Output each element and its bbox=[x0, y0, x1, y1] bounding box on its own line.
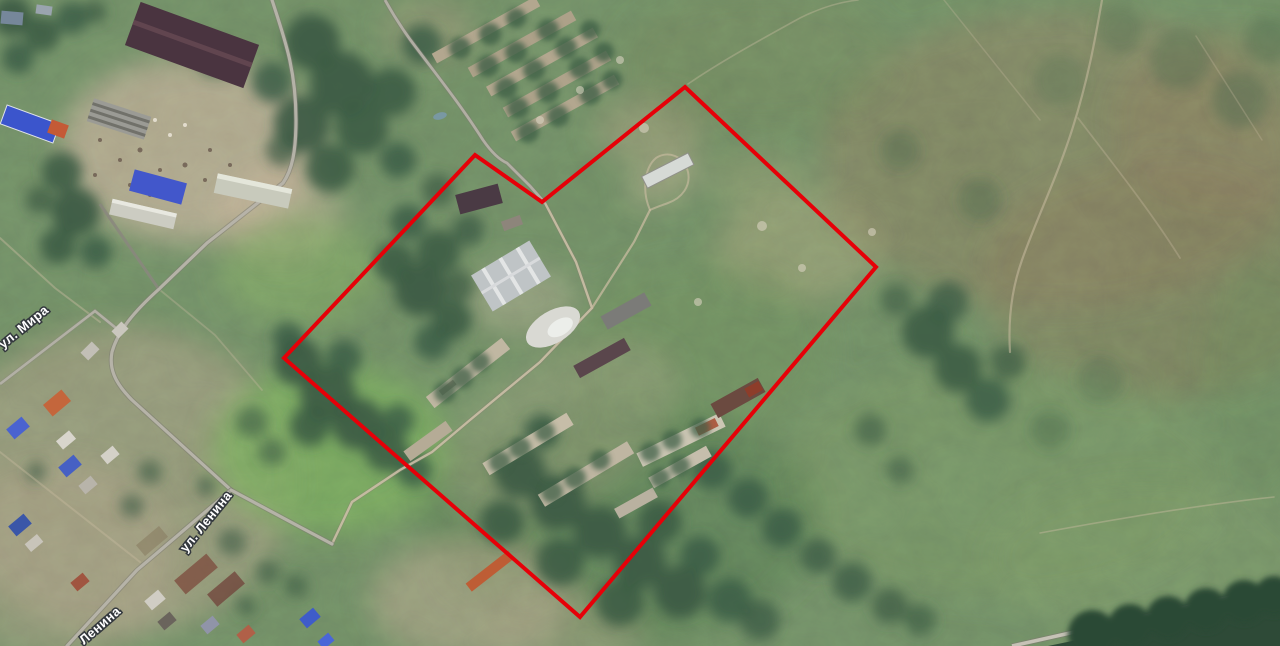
satellite-canvas[interactable]: ул. Мира ул. Ленина Ленина bbox=[0, 0, 1280, 646]
house bbox=[0, 11, 23, 26]
map-viewport[interactable]: ул. Мира ул. Ленина Ленина bbox=[0, 0, 1280, 646]
